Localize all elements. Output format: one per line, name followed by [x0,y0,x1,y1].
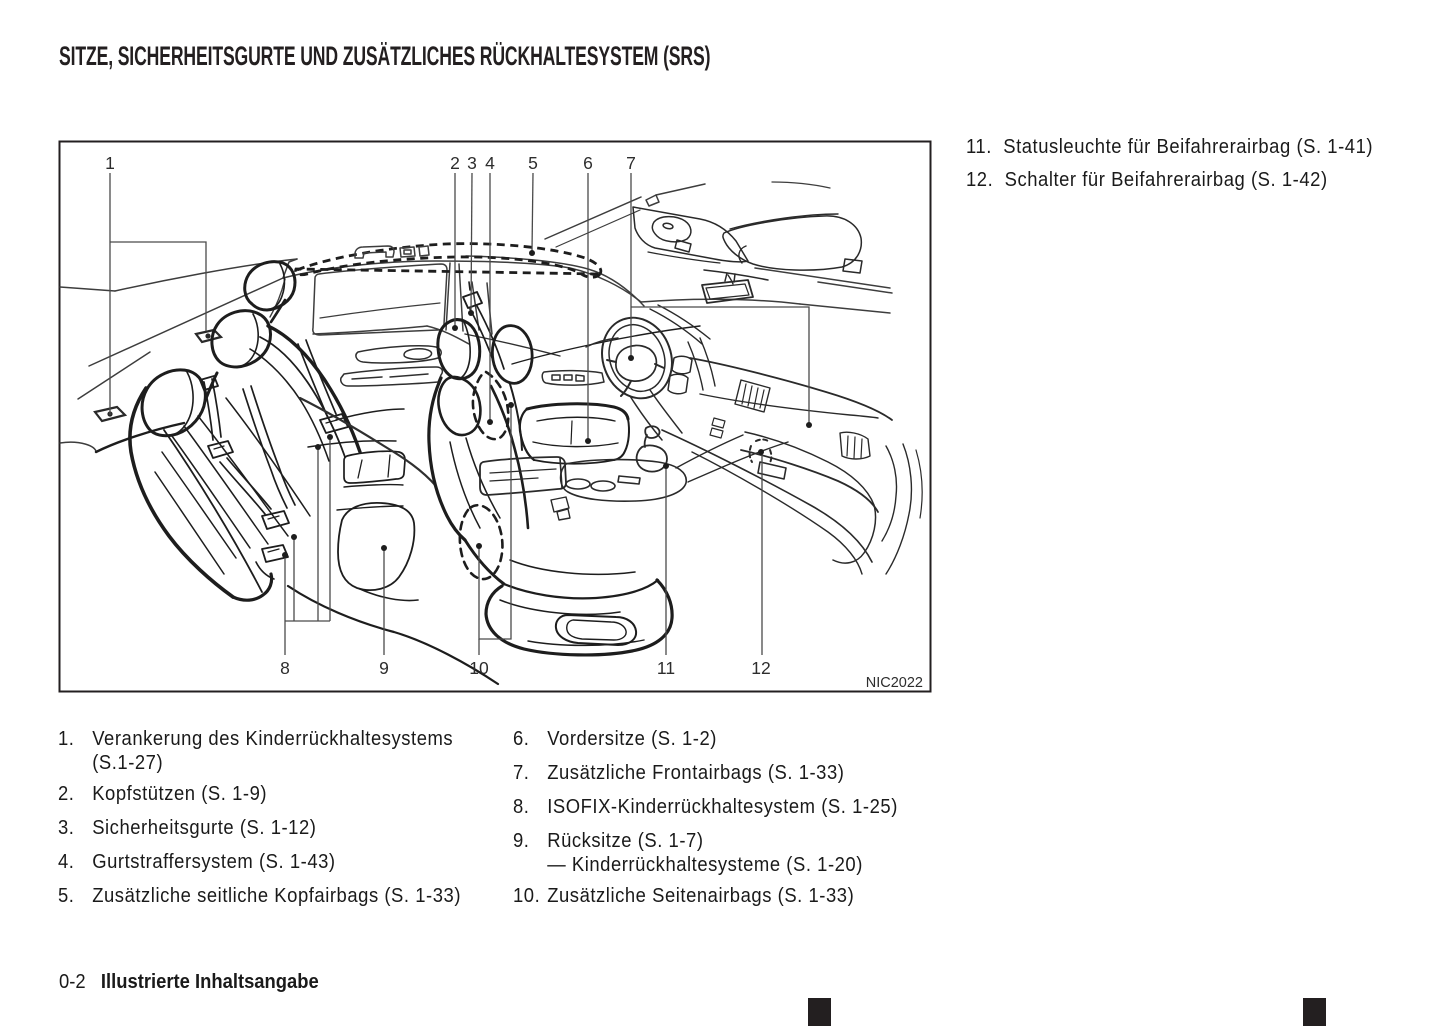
svg-text:5: 5 [528,153,538,173]
svg-text:4: 4 [485,153,495,173]
svg-text:6: 6 [583,153,593,173]
svg-text:9: 9 [379,658,389,678]
svg-text:3: 3 [467,153,477,173]
svg-text:7: 7 [626,153,636,173]
svg-text:11: 11 [657,658,675,678]
svg-text:2: 2 [450,153,460,173]
svg-text:NIC2022: NIC2022 [866,675,923,691]
svg-text:8: 8 [280,658,290,678]
svg-text:12: 12 [751,658,770,678]
svg-text:1: 1 [105,153,115,173]
svg-text:10: 10 [469,658,489,678]
